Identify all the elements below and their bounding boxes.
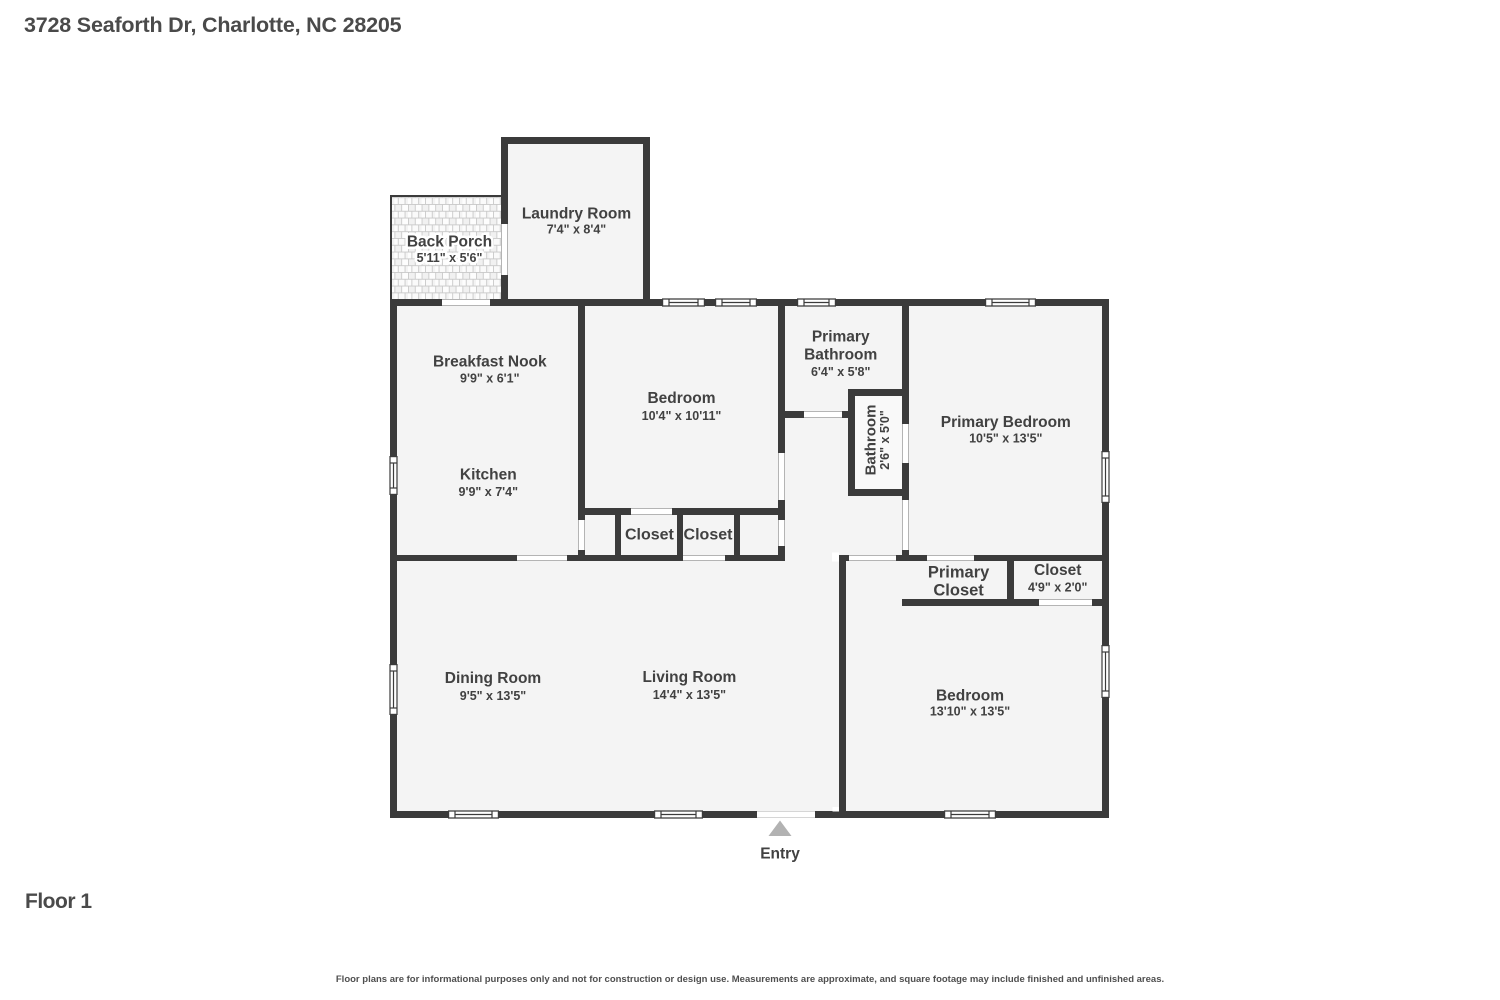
svg-text:9'9" x 7'4": 9'9" x 7'4" <box>459 485 519 499</box>
svg-text:Closet: Closet <box>1034 562 1081 579</box>
svg-text:Primary: Primary <box>928 563 990 581</box>
svg-text:Living Room: Living Room <box>642 669 736 686</box>
svg-text:Primary: Primary <box>812 329 870 346</box>
svg-text:13'10" x 13'5": 13'10" x 13'5" <box>930 705 1010 719</box>
svg-text:Breakfast Nook: Breakfast Nook <box>433 354 547 371</box>
svg-text:9'5" x 13'5": 9'5" x 13'5" <box>460 689 527 703</box>
svg-text:Kitchen: Kitchen <box>460 467 517 484</box>
svg-text:6'4" x 5'8": 6'4" x 5'8" <box>811 365 871 379</box>
svg-text:Closet: Closet <box>933 581 984 599</box>
svg-text:9'9" x 6'1": 9'9" x 6'1" <box>460 372 520 386</box>
svg-text:10'4" x 10'11": 10'4" x 10'11" <box>642 409 722 423</box>
svg-text:Closet: Closet <box>684 527 734 544</box>
svg-text:Entry: Entry <box>760 846 800 863</box>
svg-text:Primary Bedroom: Primary Bedroom <box>941 414 1071 431</box>
svg-text:Laundry Room: Laundry Room <box>522 206 631 223</box>
svg-text:Bathroom: Bathroom <box>863 405 880 476</box>
svg-text:Closet: Closet <box>625 527 675 544</box>
svg-text:Back Porch: Back Porch <box>407 234 492 251</box>
svg-text:14'4" x 13'5": 14'4" x 13'5" <box>653 688 726 702</box>
svg-text:10'5" x 13'5": 10'5" x 13'5" <box>969 432 1042 446</box>
svg-text:Bedroom: Bedroom <box>647 390 715 407</box>
svg-text:Bedroom: Bedroom <box>936 688 1004 705</box>
svg-text:Bathroom: Bathroom <box>804 347 877 364</box>
svg-text:Dining Room: Dining Room <box>445 670 541 687</box>
svg-text:4'9" x 2'0": 4'9" x 2'0" <box>1028 581 1088 595</box>
svg-text:7'4" x 8'4": 7'4" x 8'4" <box>547 223 607 237</box>
svg-text:5'11" x 5'6": 5'11" x 5'6" <box>417 251 483 265</box>
svg-text:2'6" x 5'0": 2'6" x 5'0" <box>878 410 892 470</box>
